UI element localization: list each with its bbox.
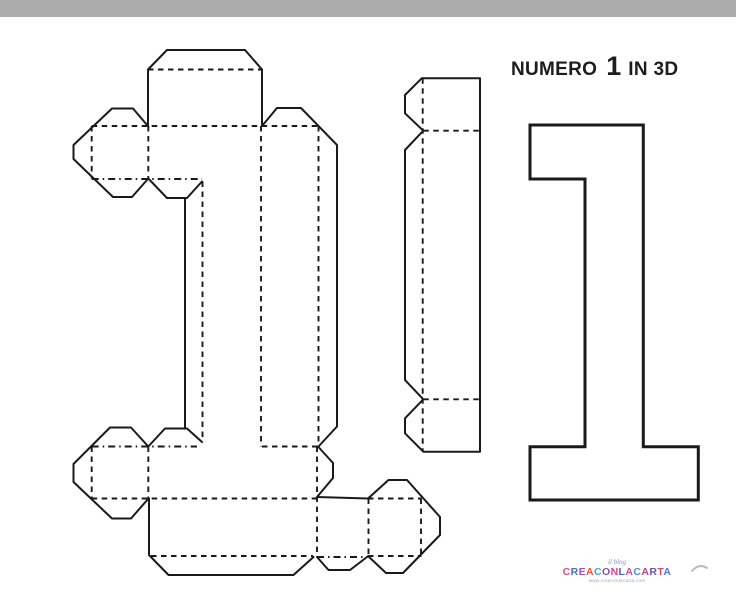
unfolded-net (74, 50, 441, 575)
watermark-tagline: www.creaconlacarta.com (552, 579, 682, 584)
papercraft-template-page: NUMERO1IN 3D il blog CREACONLACARTA www.… (0, 0, 736, 597)
title-number: 1 (606, 51, 621, 81)
net-fold-lines (92, 70, 422, 558)
strip-cut-outline (405, 78, 480, 451)
title-suffix: IN 3D (628, 59, 678, 80)
template-drawing (0, 0, 736, 597)
gray-glare-mark (692, 566, 707, 571)
side-strip-piece (405, 78, 480, 451)
net-cut-outline (74, 50, 441, 575)
watermark-script-text: il blog (552, 559, 682, 566)
strip-fold-lines (423, 78, 480, 451)
net-dashdot-fold-lines (92, 179, 367, 557)
number-one-reference (530, 125, 698, 500)
title-prefix: NUMERO (511, 59, 597, 80)
number-one-outline (530, 125, 698, 500)
page-title: NUMERO1IN 3D (511, 51, 678, 82)
watermark-main-text: CREACONLACARTA (552, 567, 682, 578)
watermark-logo: il blog CREACONLACARTA www.creaconlacart… (552, 559, 682, 583)
